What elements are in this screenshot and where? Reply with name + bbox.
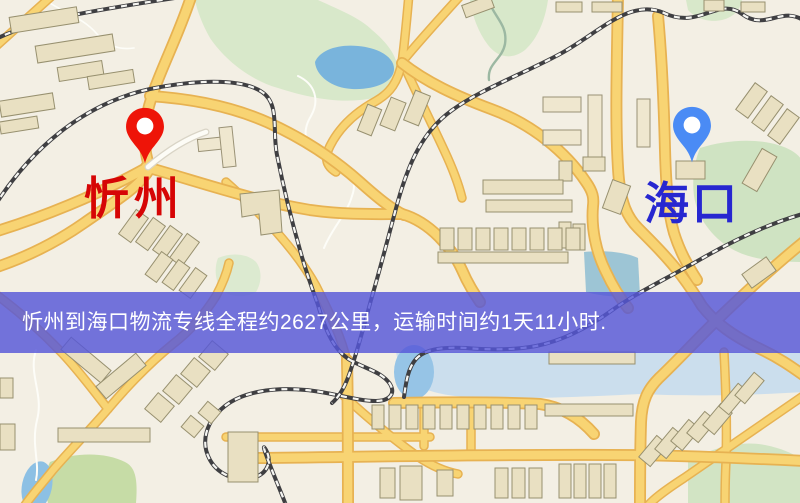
info-banner-text: 忻州到海口物流专线全程约2627公里，运输时间约1天11小时. <box>0 292 800 353</box>
map-canvas[interactable] <box>0 0 800 503</box>
origin-pin-icon[interactable] <box>123 106 167 168</box>
origin-label: 忻州 <box>84 176 184 221</box>
map-view[interactable]: 忻州 海口 忻州到海口物流专线全程约2627公里，运输时间约1天11小时. <box>0 0 800 503</box>
info-banner: 忻州到海口物流专线全程约2627公里，运输时间约1天11小时. <box>0 292 800 353</box>
destination-pin-icon[interactable] <box>670 105 714 167</box>
destination-label: 海口 <box>644 181 740 226</box>
